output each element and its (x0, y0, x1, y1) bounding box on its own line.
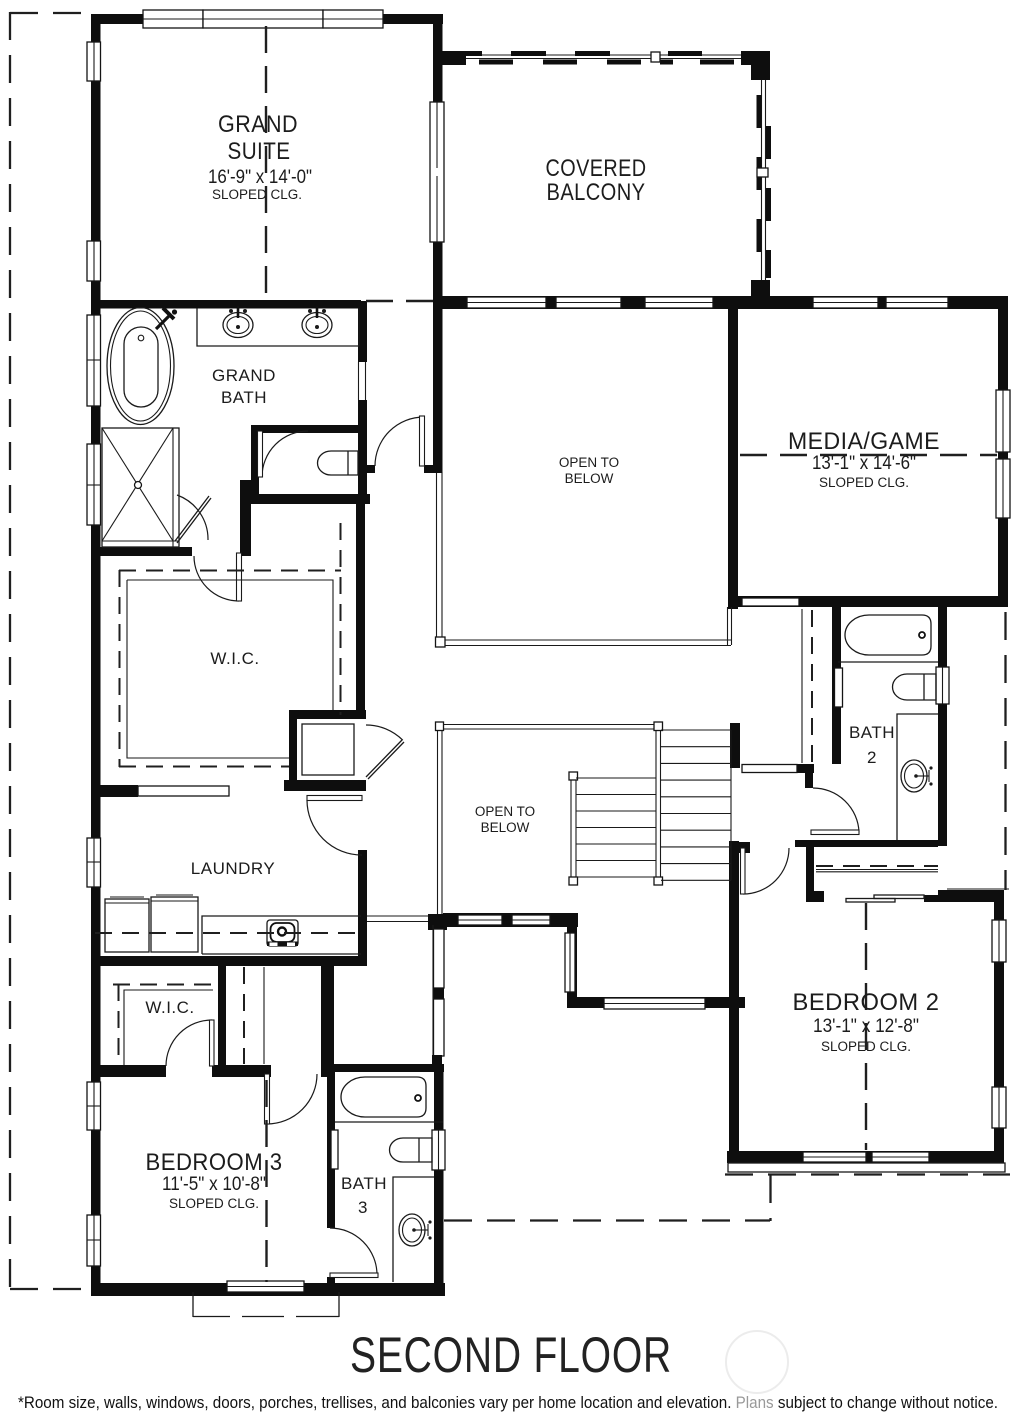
svg-text:MEDIA/GAME: MEDIA/GAME (788, 428, 940, 455)
svg-text:GRAND: GRAND (212, 366, 276, 385)
svg-text:SECOND FLOOR: SECOND FLOOR (350, 1327, 672, 1383)
svg-text:SLOPED CLG.: SLOPED CLG. (169, 1196, 259, 1211)
svg-text:COVERED: COVERED (546, 155, 647, 182)
svg-text:13'-1" x 14'-6": 13'-1" x 14'-6" (812, 453, 916, 474)
svg-text:BEDROOM 3: BEDROOM 3 (146, 1149, 283, 1176)
svg-text:BEDROOM 2: BEDROOM 2 (793, 989, 940, 1016)
svg-text:SLOPED CLG.: SLOPED CLG. (821, 1039, 911, 1054)
svg-text:SLOPED CLG.: SLOPED CLG. (819, 475, 909, 490)
svg-text:BATH: BATH (849, 723, 895, 742)
svg-text:SUITE: SUITE (228, 138, 291, 165)
svg-text:2: 2 (867, 748, 877, 767)
svg-text:W.I.C.: W.I.C. (145, 998, 194, 1017)
svg-text:*Room size, walls, windows, do: *Room size, walls, windows, doors, porch… (18, 1394, 998, 1412)
svg-text:BATH: BATH (341, 1174, 387, 1193)
svg-text:OPEN TO: OPEN TO (559, 455, 619, 470)
svg-text:11'-5" x 10'-8": 11'-5" x 10'-8" (162, 1174, 266, 1195)
svg-text:BATH: BATH (221, 388, 267, 407)
svg-text:GRAND: GRAND (218, 111, 298, 138)
svg-text:SLOPED CLG.: SLOPED CLG. (212, 187, 302, 202)
svg-text:BELOW: BELOW (565, 471, 614, 486)
svg-text:BALCONY: BALCONY (547, 179, 646, 206)
svg-text:13'-1" x 12'-8": 13'-1" x 12'-8" (813, 1016, 919, 1037)
svg-text:OPEN TO: OPEN TO (475, 804, 535, 819)
svg-text:16'-9" x 14'-0": 16'-9" x 14'-0" (208, 167, 312, 188)
svg-text:LAUNDRY: LAUNDRY (191, 859, 275, 878)
svg-text:3: 3 (358, 1198, 368, 1217)
svg-text:W.I.C.: W.I.C. (210, 649, 259, 668)
svg-text:BELOW: BELOW (481, 820, 530, 835)
